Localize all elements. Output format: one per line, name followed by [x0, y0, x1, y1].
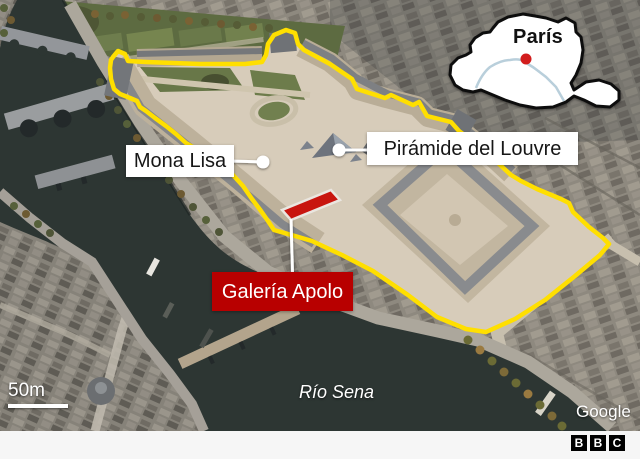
- footer-bar: B B C: [0, 431, 640, 459]
- bbc-logo-block-2: B: [590, 435, 606, 451]
- scale-label: 50m: [8, 380, 45, 402]
- galeria-apolo-label: Galería Apolo: [212, 272, 353, 311]
- google-attribution: Google: [576, 402, 631, 422]
- piramide-label: Pirámide del Louvre: [367, 132, 578, 165]
- louvre-location-dot: [521, 54, 532, 65]
- bbc-logo-block-1: B: [571, 435, 587, 451]
- louvre-map-graphic: Mona Lisa Pirámide del Louvre Galería Ap…: [0, 0, 640, 459]
- scale-bar: [8, 404, 68, 408]
- river-label: Río Sena: [299, 382, 374, 403]
- bbc-logo-block-3: C: [609, 435, 625, 451]
- inset-city-label: París: [498, 26, 578, 49]
- mona-lisa-label: Mona Lisa: [126, 145, 234, 177]
- paris-inset-map: [436, 2, 640, 120]
